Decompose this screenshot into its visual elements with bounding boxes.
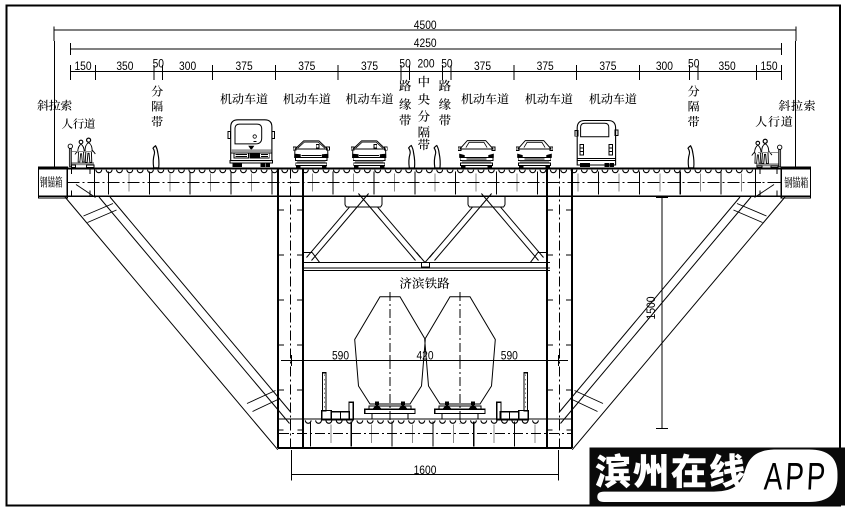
svg-text:50: 50 bbox=[688, 57, 700, 71]
svg-text:350: 350 bbox=[116, 59, 133, 73]
svg-text:APP: APP bbox=[763, 456, 829, 498]
svg-text:300: 300 bbox=[179, 59, 196, 73]
svg-text:50: 50 bbox=[441, 57, 453, 71]
svg-text:300: 300 bbox=[656, 59, 673, 73]
svg-text:590: 590 bbox=[332, 348, 349, 362]
svg-text:1500: 1500 bbox=[646, 297, 658, 320]
svg-text:590: 590 bbox=[501, 348, 518, 362]
svg-text:375: 375 bbox=[599, 59, 616, 73]
svg-text:1600: 1600 bbox=[414, 463, 437, 477]
svg-text:50: 50 bbox=[399, 57, 411, 71]
svg-text:375: 375 bbox=[236, 59, 253, 73]
svg-text:375: 375 bbox=[474, 59, 491, 73]
svg-text:375: 375 bbox=[537, 59, 554, 73]
svg-text:150: 150 bbox=[74, 59, 91, 73]
svg-text:350: 350 bbox=[719, 59, 736, 73]
svg-text:150: 150 bbox=[760, 59, 777, 73]
svg-text:4250: 4250 bbox=[414, 36, 437, 50]
svg-text:4500: 4500 bbox=[414, 18, 437, 32]
svg-text:200: 200 bbox=[417, 57, 434, 71]
svg-text:50: 50 bbox=[153, 57, 165, 71]
svg-text:375: 375 bbox=[298, 59, 315, 73]
svg-text:375: 375 bbox=[361, 59, 378, 73]
